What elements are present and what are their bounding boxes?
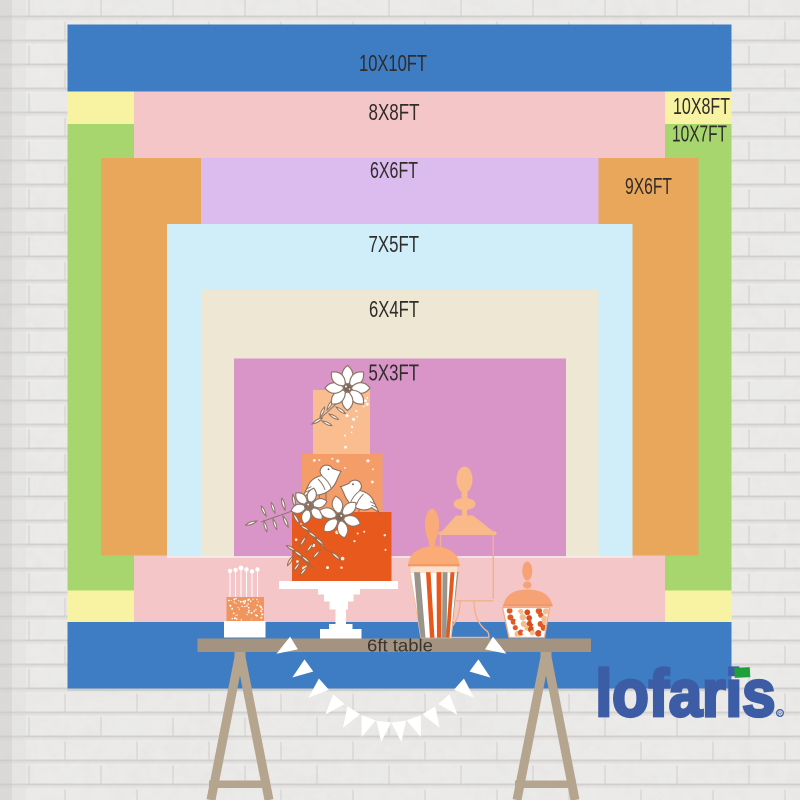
svg-text:10X10FT: 10X10FT	[359, 50, 427, 76]
svg-text:5X3FT: 5X3FT	[369, 360, 420, 386]
svg-text:R: R	[778, 712, 782, 718]
svg-text:6X6FT: 6X6FT	[370, 157, 418, 183]
svg-text:6X4FT: 6X4FT	[369, 296, 419, 322]
svg-text:10X7FT: 10X7FT	[672, 121, 727, 147]
svg-text:7X5FT: 7X5FT	[369, 231, 420, 257]
svg-text:lofaris: lofaris	[596, 656, 776, 730]
svg-text:9X6FT: 9X6FT	[625, 173, 672, 199]
svg-text:8X8FT: 8X8FT	[369, 99, 420, 125]
svg-text:6ft table: 6ft table	[367, 636, 433, 656]
svg-text:10X8FT: 10X8FT	[673, 93, 730, 119]
